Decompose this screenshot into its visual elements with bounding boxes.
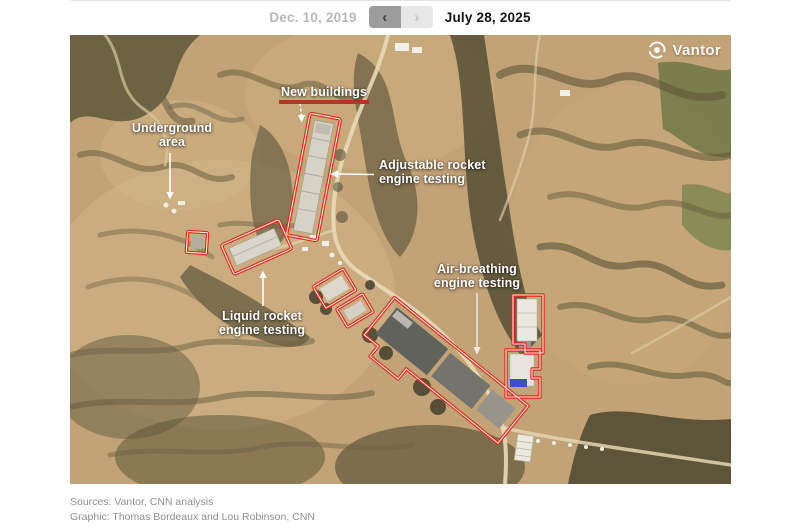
footer-credits: Sources: Vantor, CNN analysis Graphic: T…: [70, 495, 315, 525]
next-date-button[interactable]: ›: [401, 6, 433, 28]
label-underground-area: Underground area: [127, 121, 217, 149]
graphic-credit-line: Graphic: Thomas Bordeaux and Lou Robinso…: [70, 510, 315, 525]
satellite-image: New buildings Underground area Adjustabl…: [70, 35, 731, 484]
vantor-watermark: Vantor: [647, 40, 721, 60]
top-divider: [70, 0, 731, 1]
date-toggle: ‹ ›: [369, 6, 433, 28]
page: Dec. 10, 2019 ‹ › July 28, 2025: [0, 0, 800, 530]
current-date-label: July 28, 2025: [445, 10, 531, 25]
label-air-breathing: Air-breathing engine testing: [432, 262, 522, 290]
label-liquid-rocket: Liquid rocket engine testing: [217, 309, 307, 337]
previous-date-button[interactable]: ‹: [369, 6, 401, 28]
sources-line: Sources: Vantor, CNN analysis: [70, 495, 315, 510]
previous-date-label[interactable]: Dec. 10, 2019: [269, 10, 356, 25]
chevron-left-icon: ‹: [382, 10, 387, 25]
label-new-buildings: New buildings: [275, 85, 373, 104]
vantor-logo-icon: [647, 40, 667, 60]
satellite-terrain-graphic: [70, 35, 731, 484]
chevron-right-icon: ›: [414, 10, 419, 25]
vantor-logo-text: Vantor: [673, 42, 721, 59]
label-adjustable-rocket: Adjustable rocket engine testing: [379, 158, 489, 186]
date-toggle-header: Dec. 10, 2019 ‹ › July 28, 2025: [0, 4, 800, 30]
